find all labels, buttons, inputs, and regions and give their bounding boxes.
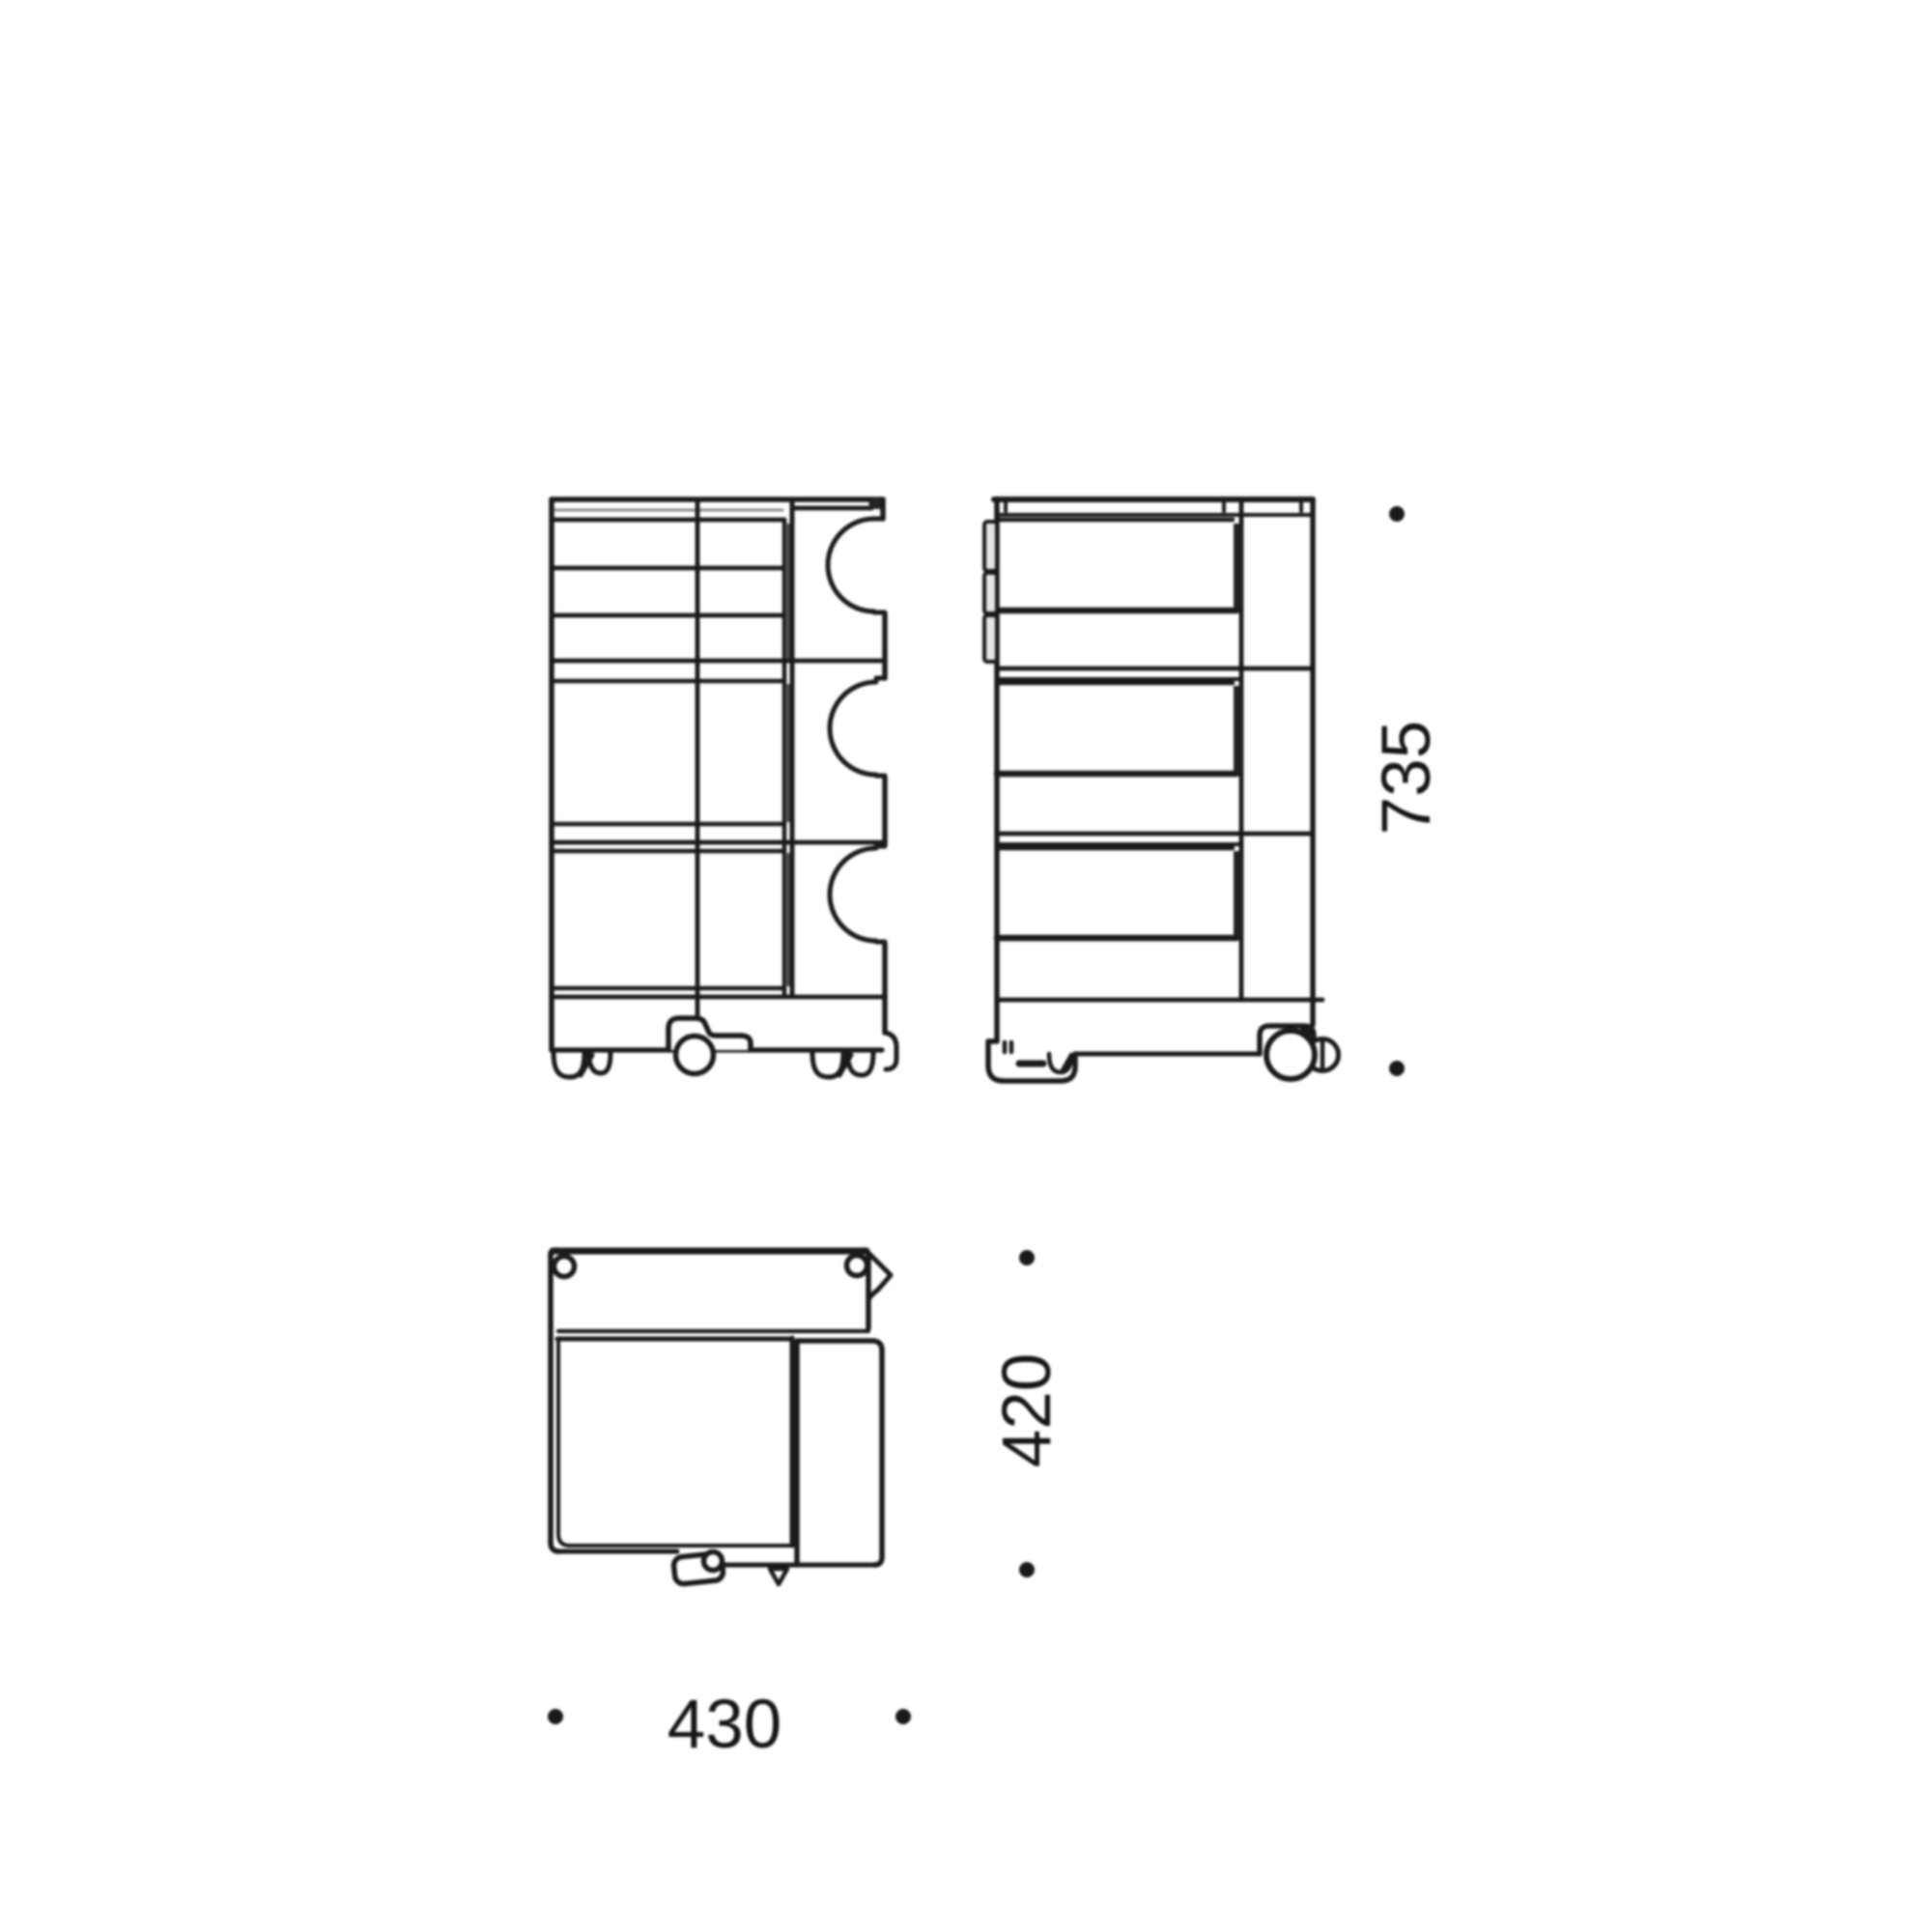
svg-text:420: 420 bbox=[989, 1353, 1065, 1467]
svg-text:735: 735 bbox=[1369, 721, 1445, 835]
svg-text:430: 430 bbox=[668, 1687, 781, 1763]
